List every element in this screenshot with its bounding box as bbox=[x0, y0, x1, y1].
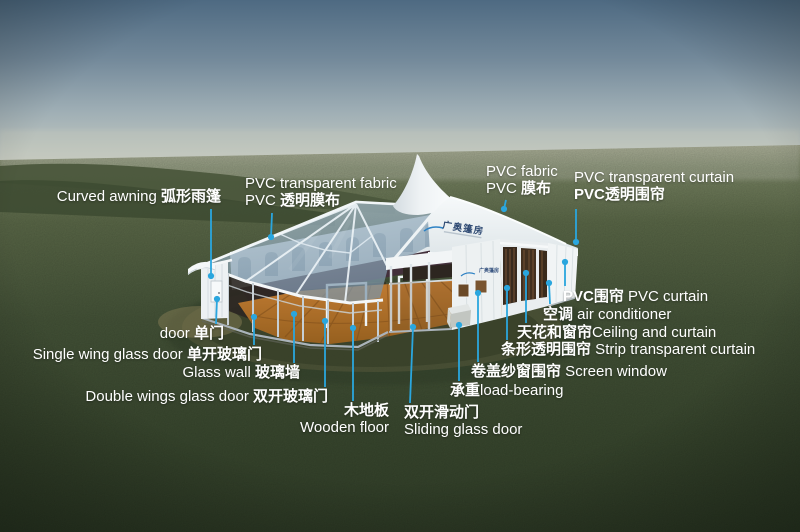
label-text-en: Curved awning bbox=[57, 188, 161, 205]
label-line: Curved awning 弧形雨篷 bbox=[57, 188, 221, 205]
label-text-zh: 单门 bbox=[194, 325, 224, 342]
label-text-en: PVC transparent curtain bbox=[574, 169, 734, 186]
label-text-en: load-bearing bbox=[480, 382, 563, 399]
label-line: 天花和窗帘Ceiling and curtain bbox=[517, 324, 716, 341]
label-text-en: Screen window bbox=[561, 363, 667, 380]
label-sliding-glass-door: 双开滑动门Sliding glass door bbox=[404, 404, 522, 438]
label-pvc-transparent-curtain: PVC transparent curtainPVC透明围帘 bbox=[574, 169, 734, 203]
label-text-en: PVC bbox=[245, 192, 280, 209]
label-text-zh: 透明膜布 bbox=[280, 192, 340, 209]
vignette bbox=[0, 0, 800, 532]
label-text-zh: PVC透明围帘 bbox=[574, 186, 665, 203]
label-text-en: Sliding glass door bbox=[404, 421, 522, 438]
label-pvc-fabric: PVC fabricPVC 膜布 bbox=[486, 163, 558, 197]
label-line: Double wings glass door 双开玻璃门 bbox=[85, 388, 328, 405]
label-load-bearing: 承重load-bearing bbox=[450, 382, 563, 399]
label-line: 双开滑动门 bbox=[404, 404, 522, 421]
label-door: door 单门 bbox=[160, 325, 224, 342]
label-curved-awning: Curved awning 弧形雨篷 bbox=[57, 188, 221, 205]
scene-illustration: 广奥篷房 广奥篷房 bbox=[0, 0, 800, 532]
label-text-zh: 双开滑动门 bbox=[404, 404, 479, 421]
label-text-zh: 承重 bbox=[450, 382, 480, 399]
label-glass-wall: Glass wall 玻璃墙 bbox=[182, 364, 300, 381]
label-screen-window: 卷盖纱窗围帘 Screen window bbox=[471, 363, 667, 380]
label-line: 空调 air conditioner bbox=[543, 306, 671, 323]
label-single-wing-glass-door: Single wing glass door 单开玻璃门 bbox=[33, 346, 262, 363]
label-text-en: PVC curtain bbox=[624, 288, 708, 305]
label-air-conditioner: 空调 air conditioner bbox=[543, 306, 671, 323]
label-text-zh: 天花和窗帘 bbox=[517, 324, 592, 341]
label-text-zh: 膜布 bbox=[521, 180, 551, 197]
label-pvc-curtain: PVC围帘 PVC curtain bbox=[563, 288, 708, 305]
label-line: PVC transparent curtain bbox=[574, 169, 734, 186]
label-line: PVC透明围帘 bbox=[574, 186, 734, 203]
tent-diagram: 广奥篷房 广奥篷房 bbox=[0, 0, 800, 532]
label-line: PVC 膜布 bbox=[486, 180, 558, 197]
label-line: PVC围帘 PVC curtain bbox=[563, 288, 708, 305]
label-text-zh: PVC围帘 bbox=[563, 288, 624, 305]
label-text-zh: 单开玻璃门 bbox=[187, 346, 262, 363]
label-line: PVC 透明膜布 bbox=[245, 192, 397, 209]
label-line: 卷盖纱窗围帘 Screen window bbox=[471, 363, 667, 380]
label-text-en: door bbox=[160, 325, 194, 342]
label-text-en: Ceiling and curtain bbox=[592, 324, 716, 341]
label-line: 条形透明围帘 Strip transparent curtain bbox=[501, 341, 755, 358]
label-text-zh: 条形透明围帘 bbox=[501, 341, 591, 358]
label-text-en: PVC transparent fabric bbox=[245, 175, 397, 192]
label-text-en: air conditioner bbox=[573, 306, 671, 323]
label-text-en: PVC bbox=[486, 180, 521, 197]
label-line: 木地板 bbox=[300, 402, 389, 419]
label-text-zh: 空调 bbox=[543, 306, 573, 323]
label-text-en: Double wings glass door bbox=[85, 388, 253, 405]
label-line: door 单门 bbox=[160, 325, 224, 342]
label-line: Glass wall 玻璃墙 bbox=[182, 364, 300, 381]
label-text-en: Wooden floor bbox=[300, 419, 389, 436]
label-strip-transparent-curtain: 条形透明围帘 Strip transparent curtain bbox=[501, 341, 755, 358]
label-line: PVC fabric bbox=[486, 163, 558, 180]
label-ceiling-and-curtain: 天花和窗帘Ceiling and curtain bbox=[517, 324, 716, 341]
label-pvc-transparent-fabric: PVC transparent fabricPVC 透明膜布 bbox=[245, 175, 397, 209]
label-double-wings-glass-door: Double wings glass door 双开玻璃门 bbox=[85, 388, 328, 405]
label-text-zh: 弧形雨篷 bbox=[161, 188, 221, 205]
label-text-zh: 木地板 bbox=[344, 402, 389, 419]
label-text-en: Strip transparent curtain bbox=[591, 341, 755, 358]
label-text-en: PVC fabric bbox=[486, 163, 558, 180]
label-line: 承重load-bearing bbox=[450, 382, 563, 399]
label-text-en: Glass wall bbox=[182, 364, 255, 381]
label-wooden-floor: 木地板Wooden floor bbox=[300, 402, 389, 436]
label-line: PVC transparent fabric bbox=[245, 175, 397, 192]
label-line: Sliding glass door bbox=[404, 421, 522, 438]
label-line: Single wing glass door 单开玻璃门 bbox=[33, 346, 262, 363]
label-text-zh: 卷盖纱窗围帘 bbox=[471, 363, 561, 380]
label-text-en: Single wing glass door bbox=[33, 346, 187, 363]
label-line: Wooden floor bbox=[300, 419, 389, 436]
label-text-zh: 玻璃墙 bbox=[255, 364, 300, 381]
